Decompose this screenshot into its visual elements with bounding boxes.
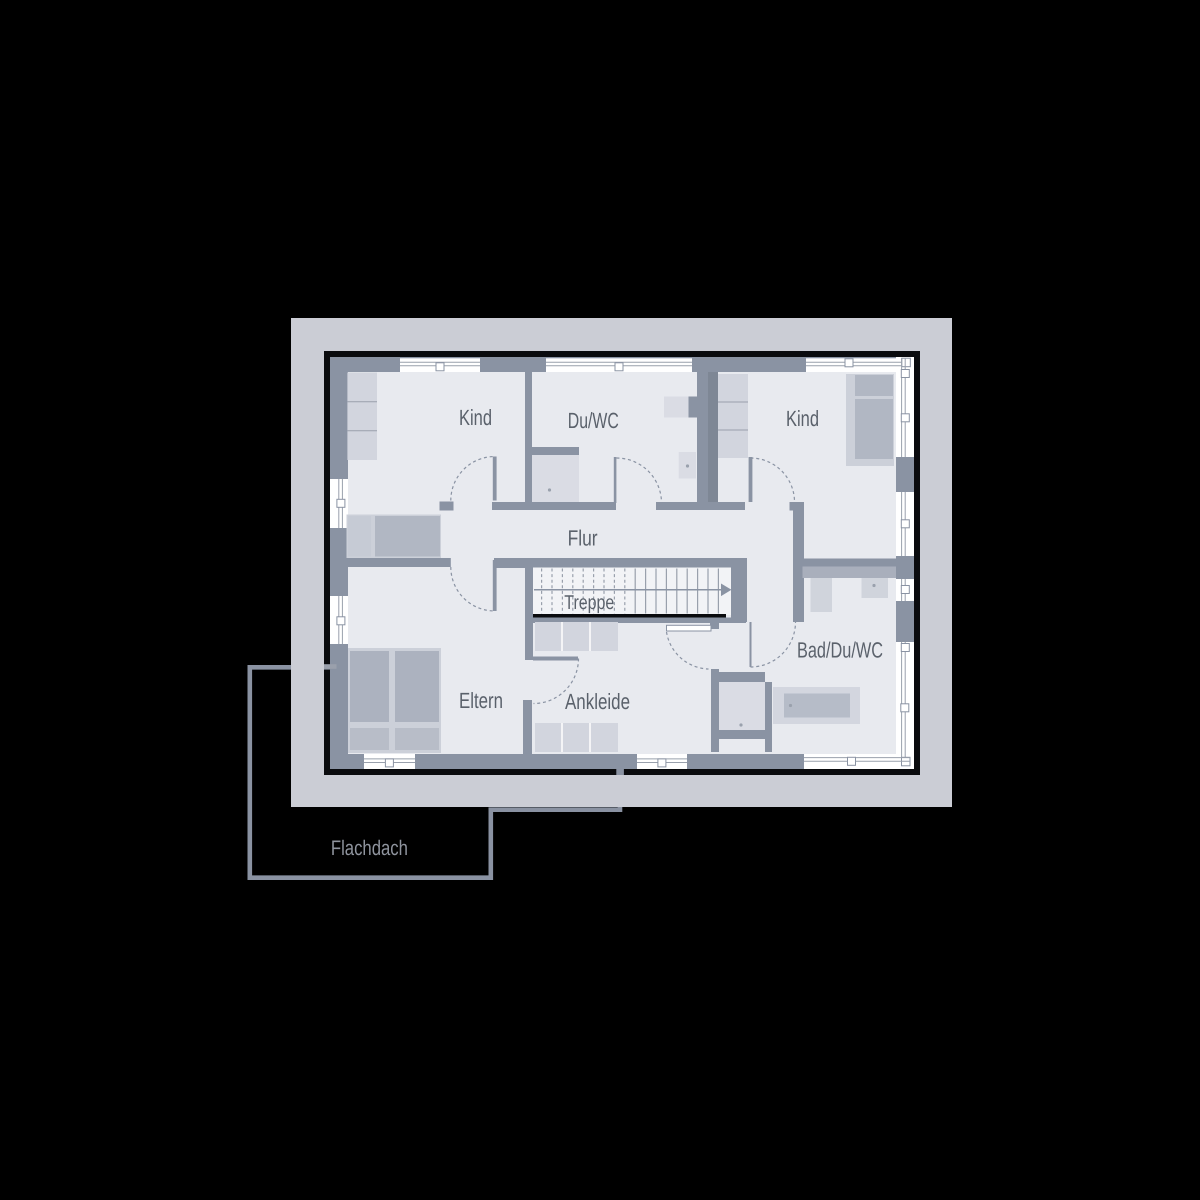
svg-text:Treppe: Treppe [564, 592, 614, 614]
svg-text:Flachdach: Flachdach [331, 837, 408, 860]
svg-text:Flur: Flur [568, 526, 598, 551]
svg-text:Ankleide: Ankleide [565, 689, 630, 714]
svg-text:Kind: Kind [459, 405, 492, 430]
svg-text:Eltern: Eltern [459, 688, 503, 713]
svg-text:Du/WC: Du/WC [568, 408, 619, 433]
svg-text:Kind: Kind [786, 406, 819, 431]
svg-text:Bad/Du/WC: Bad/Du/WC [797, 638, 883, 663]
